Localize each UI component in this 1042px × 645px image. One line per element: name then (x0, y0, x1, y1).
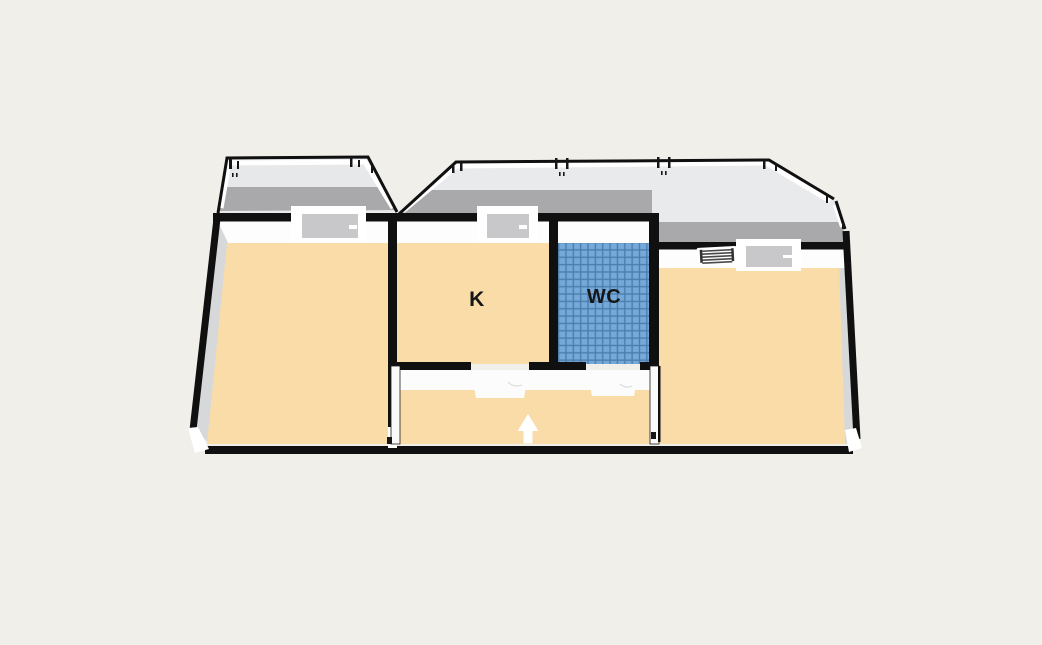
railing-post (555, 158, 558, 169)
window-handle (519, 225, 527, 229)
wall-segment (529, 362, 553, 370)
kitchen-door-leaf (471, 370, 529, 398)
hallway-left-wall (391, 366, 400, 444)
railing-post (236, 173, 238, 177)
wall-segment (397, 213, 477, 222)
window-handle (349, 225, 357, 229)
floorplan-canvas: K WC (0, 0, 1042, 645)
railing-post (452, 164, 455, 173)
living-room-left (195, 221, 399, 444)
railing-post (657, 157, 660, 168)
wc-top-wall-face (558, 221, 651, 243)
railing-post (763, 159, 766, 169)
railing-post (229, 158, 232, 169)
window-handle (783, 255, 792, 258)
railing-post (460, 162, 463, 171)
right-room-window (736, 239, 801, 271)
railing-post (559, 172, 561, 176)
kitchen-window (477, 206, 538, 242)
wall-segment (553, 362, 586, 370)
railing-post (842, 223, 845, 229)
living-room-left-floor (207, 243, 390, 444)
wall-segment (213, 213, 296, 222)
railing-post (371, 166, 373, 173)
floorplan-svg: K WC (0, 0, 1042, 645)
door-stop-mark (651, 432, 656, 439)
railing-post (661, 171, 663, 175)
wall-segment (558, 213, 651, 222)
railing-post (358, 160, 360, 167)
railing-post (826, 196, 828, 203)
kitchen-label: K (469, 288, 485, 311)
railing-post (232, 173, 234, 177)
railing-post (563, 172, 565, 176)
railing-post (237, 161, 239, 169)
wall-segment (649, 213, 659, 369)
left-balcony (218, 157, 397, 213)
wall-segment (798, 242, 846, 250)
wall-segment (397, 362, 471, 370)
railing-post (665, 171, 667, 175)
wall-segment (549, 213, 558, 369)
wc-label: WC (587, 286, 621, 308)
living-room-right-floor (655, 268, 845, 444)
railing-post (566, 158, 569, 169)
door-stop-mark (387, 437, 392, 444)
railing-post (350, 157, 353, 167)
left-room-window (291, 206, 366, 242)
radiator (697, 246, 738, 266)
wc-door-leaf (587, 370, 639, 396)
railing-post (775, 163, 777, 171)
railing-post (668, 157, 671, 168)
living-room-right (655, 248, 858, 444)
wall-segment (658, 366, 661, 442)
